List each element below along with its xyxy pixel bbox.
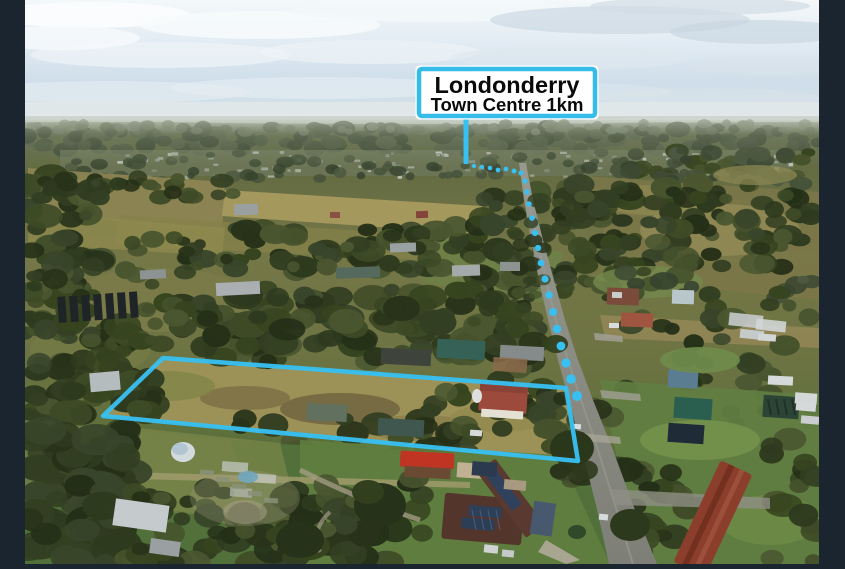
svg-text:Town Centre 1km: Town Centre 1km [431,94,584,115]
